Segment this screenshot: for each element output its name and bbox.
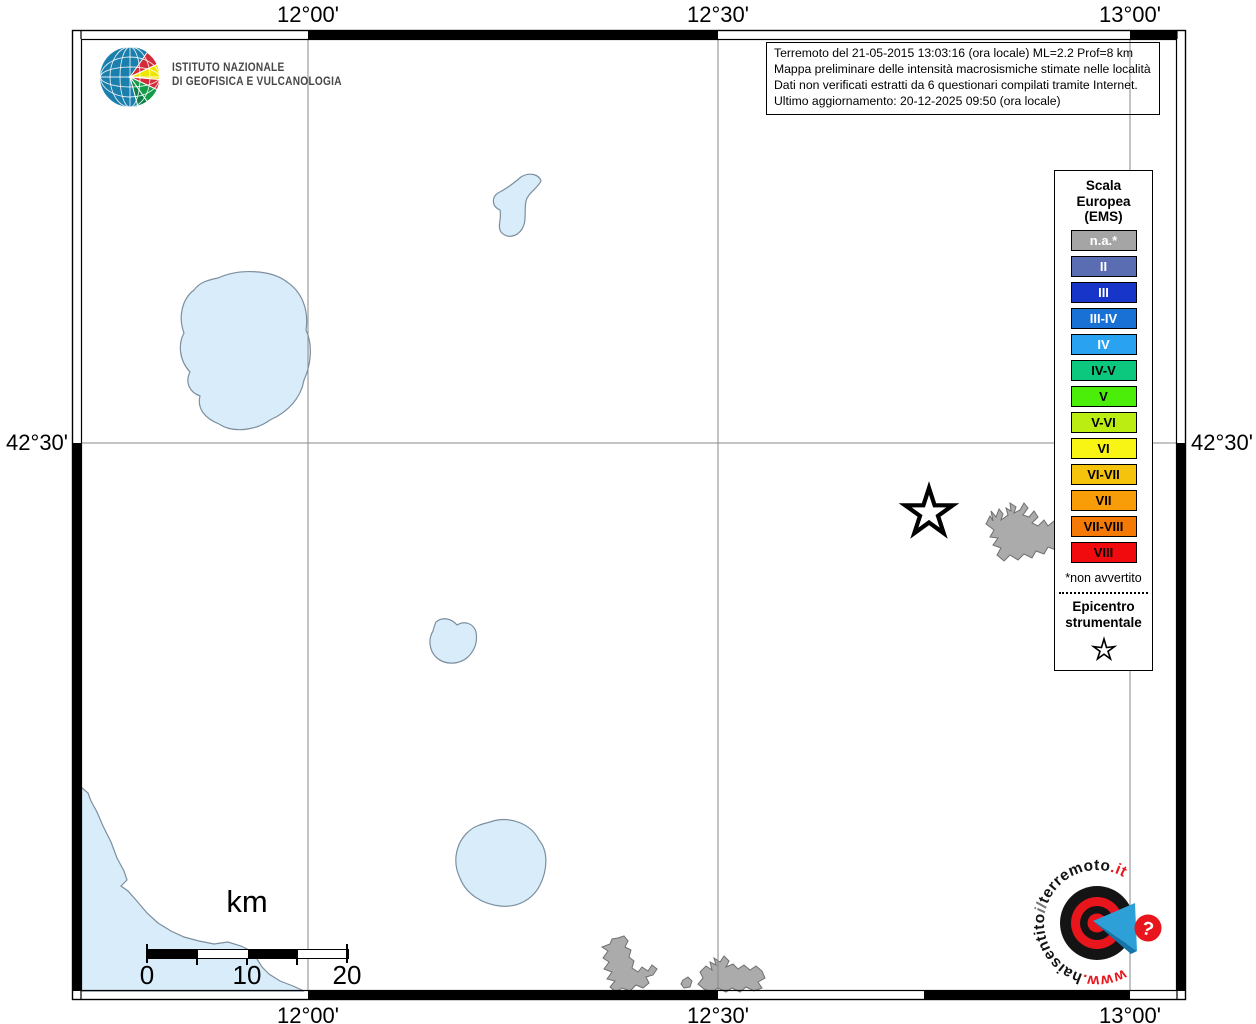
legend-swatch: V — [1071, 386, 1137, 407]
scale-bar-unit-label: km — [197, 884, 297, 920]
coordinate-label-top: 12°00' — [248, 2, 368, 28]
ingv-globe-logo-icon — [98, 45, 162, 109]
map-canvas: 12°00' 12°30' 13°00' 12°00' 12°30' 13°00… — [0, 0, 1256, 1024]
epicenter-star-icon — [905, 488, 953, 533]
info-line: Mappa preliminare delle intensità macros… — [774, 62, 1152, 78]
legend-swatch: VII-VIII — [1071, 516, 1137, 537]
scale-bar — [147, 949, 349, 959]
info-line: Terremoto del 21-05-2015 13:03:16 (ora l… — [774, 46, 1152, 62]
coordinate-label-left: 42°30' — [0, 430, 68, 456]
legend-swatch: VI — [1071, 438, 1137, 459]
info-line: Dati non verificati estratti da 6 questi… — [774, 78, 1152, 94]
earthquake-info-box: Terremoto del 21-05-2015 13:03:16 (ora l… — [766, 42, 1160, 115]
legend-swatch: VI-VII — [1071, 464, 1137, 485]
urban-area — [681, 977, 692, 988]
legend-swatch: n.a.* — [1071, 230, 1137, 251]
legend-swatch: IV-V — [1071, 360, 1137, 381]
info-line: Ultimo aggiornamento: 20-12-2025 09:50 (… — [774, 94, 1152, 110]
lake — [180, 272, 310, 430]
legend-footnote: *non avvertito — [1055, 571, 1152, 585]
coordinate-label-bottom: 12°00' — [248, 1003, 368, 1024]
scale-bar-number: 10 — [225, 960, 269, 991]
scale-bar-tick — [296, 958, 298, 965]
lake — [493, 174, 541, 236]
scale-bar-tick — [196, 958, 198, 965]
legend-swatch: IV — [1071, 334, 1137, 355]
lake — [430, 619, 477, 663]
lake — [456, 820, 546, 907]
legend-epicenter-label: Epicentro strumentale — [1055, 599, 1152, 632]
legend-swatch: V-VI — [1071, 412, 1137, 433]
legend-epicenter-star-icon — [1091, 636, 1117, 662]
legend-swatch: II — [1071, 256, 1137, 277]
urban-area — [602, 936, 657, 992]
legend-title: Scala Europea (EMS) — [1055, 171, 1152, 225]
scale-bar-number: 0 — [125, 960, 169, 991]
legend-swatch: III-IV — [1071, 308, 1137, 329]
coordinate-label-bottom: 13°00' — [1070, 1003, 1190, 1024]
urban-area — [986, 503, 1064, 561]
haisentitoilterremoto-logo: ? www.haisentitoilterremoto.it — [1025, 845, 1185, 1005]
urban-area — [698, 956, 765, 992]
legend-divider — [1059, 592, 1148, 594]
target-icon — [1060, 886, 1137, 960]
coordinate-label-top: 12°30' — [658, 2, 778, 28]
coordinate-label-bottom: 12°30' — [658, 1003, 778, 1024]
legend-swatch: VII — [1071, 490, 1137, 511]
legend-swatch: III — [1071, 282, 1137, 303]
ingv-logo-text: ISTITUTO NAZIONALE DI GEOFISICA E VULCAN… — [172, 62, 342, 89]
coordinate-label-right: 42°30' — [1191, 430, 1253, 456]
legend-panel: Scala Europea (EMS) n.a.* II III III-IV … — [1054, 170, 1153, 671]
legend-swatch: VIII — [1071, 542, 1137, 563]
question-mark-icon: ? — [1132, 912, 1165, 945]
scale-bar-number: 20 — [325, 960, 369, 991]
coordinate-label-top: 13°00' — [1070, 2, 1190, 28]
